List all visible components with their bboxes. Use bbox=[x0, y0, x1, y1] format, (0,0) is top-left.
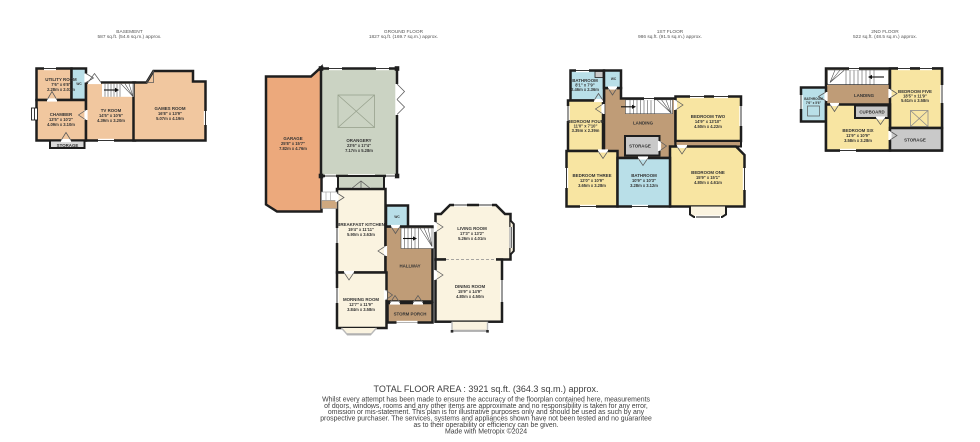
svg-text:4.39m x 3.20m: 4.39m x 3.20m bbox=[97, 118, 125, 123]
svg-text:4.50m x 4.22m: 4.50m x 4.22m bbox=[694, 124, 722, 129]
svg-text:LANDING: LANDING bbox=[854, 93, 875, 98]
svg-text:STORAGE: STORAGE bbox=[904, 138, 926, 143]
svg-text:LANDING: LANDING bbox=[633, 121, 654, 126]
svg-text:5.07m x 4.19m: 5.07m x 4.19m bbox=[156, 116, 184, 121]
svg-text:7.17m x 5.28m: 7.17m x 5.28m bbox=[345, 148, 373, 153]
svg-text:3.84m x 3.58m: 3.84m x 3.58m bbox=[347, 307, 375, 312]
svg-text:WC: WC bbox=[394, 215, 400, 219]
svg-text:5.61m x 3.58m: 5.61m x 3.58m bbox=[901, 98, 929, 103]
svg-text:3.28m x 3.12m: 3.28m x 3.12m bbox=[630, 183, 658, 188]
svg-text:522 sq.ft. (48.5 sq.m.) approx: 522 sq.ft. (48.5 sq.m.) approx. bbox=[853, 34, 917, 40]
svg-text:WC: WC bbox=[611, 77, 617, 81]
svg-text:3.35m x 2.39m: 3.35m x 2.39m bbox=[572, 128, 600, 133]
svg-text:5.26m x 4.01m: 5.26m x 4.01m bbox=[458, 236, 486, 241]
svg-text:WC: WC bbox=[76, 82, 82, 86]
svg-text:3.65m x 3.28m: 3.65m x 3.28m bbox=[578, 183, 606, 188]
svg-text:2.28m x 2.03m: 2.28m x 2.03m bbox=[47, 87, 75, 92]
svg-text:HALLWAY: HALLWAY bbox=[399, 264, 420, 269]
svg-text:3.58m x 3.28m: 3.58m x 3.28m bbox=[844, 138, 872, 143]
svg-text:STORAGE: STORAGE bbox=[57, 143, 79, 148]
svg-text:4.80m x 4.61m: 4.80m x 4.61m bbox=[694, 180, 722, 185]
svg-text:986 sq.ft. (91.5 sq.m.) approx: 986 sq.ft. (91.5 sq.m.) approx. bbox=[638, 34, 702, 40]
svg-text:1827 sq.ft. (169.7 sq.m.) appr: 1827 sq.ft. (169.7 sq.m.) approx. bbox=[369, 34, 438, 40]
svg-text:4.80m x 4.50m: 4.80m x 4.50m bbox=[456, 294, 484, 299]
svg-text:STORM PORCH: STORM PORCH bbox=[394, 312, 427, 317]
svg-text:Made with Metropix ©2024: Made with Metropix ©2024 bbox=[445, 427, 527, 435]
svg-text:587 sq.ft. (54.6 sq.m.) approx: 587 sq.ft. (54.6 sq.m.) approx. bbox=[98, 34, 162, 40]
svg-text:7.82m x 4.76m: 7.82m x 4.76m bbox=[279, 146, 307, 151]
svg-text:STORAGE: STORAGE bbox=[629, 144, 651, 149]
svg-text:7'6" x 5'6": 7'6" x 5'6" bbox=[806, 101, 822, 105]
svg-text:CUPBOARD: CUPBOARD bbox=[859, 110, 884, 115]
svg-text:TOTAL FLOOR AREA : 3921 sq.ft.: TOTAL FLOOR AREA : 3921 sq.ft. (364.3 sq… bbox=[374, 384, 599, 394]
svg-text:5.90m x 3.63m: 5.90m x 3.63m bbox=[347, 232, 375, 237]
svg-text:2.46m x 2.36m: 2.46m x 2.36m bbox=[571, 87, 599, 92]
svg-text:4.09m x 3.10m: 4.09m x 3.10m bbox=[47, 122, 75, 127]
